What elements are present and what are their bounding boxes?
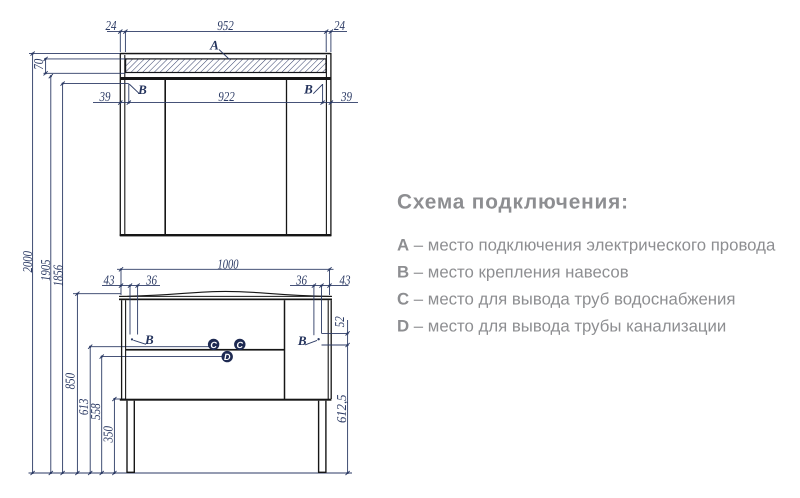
svg-text:558: 558 (88, 403, 103, 420)
svg-text:850: 850 (63, 373, 78, 390)
svg-text:36: 36 (295, 272, 307, 287)
svg-text:D – место для вывода трубы кан: D – место для вывода трубы канализации (397, 317, 726, 336)
svg-text:B: B (297, 333, 307, 348)
svg-text:B: B (144, 332, 154, 347)
svg-text:B: B (137, 82, 147, 97)
svg-text:24: 24 (106, 18, 117, 33)
svg-text:43: 43 (104, 272, 115, 287)
svg-text:52: 52 (332, 316, 347, 327)
svg-text:Схема подключения:: Схема подключения: (397, 191, 628, 214)
svg-text:C: C (237, 340, 244, 350)
svg-text:1000: 1000 (218, 257, 239, 272)
svg-text:952: 952 (217, 18, 234, 33)
svg-text:A – место подключения электрич: A – место подключения электрического про… (397, 236, 776, 255)
svg-text:350: 350 (101, 426, 116, 443)
svg-text:2000: 2000 (20, 251, 35, 273)
svg-text:24: 24 (334, 18, 345, 33)
svg-text:43: 43 (340, 272, 351, 287)
svg-text:39: 39 (99, 89, 111, 104)
svg-text:A: A (209, 38, 219, 53)
svg-text:612,5: 612,5 (334, 394, 349, 423)
svg-text:922: 922 (218, 89, 235, 104)
svg-text:D: D (224, 352, 231, 362)
svg-text:B: B (303, 82, 313, 97)
svg-text:C: C (210, 340, 217, 350)
svg-text:C – место для вывода труб водо: C – место для вывода труб водоснабжения (397, 290, 736, 309)
svg-text:B – место крепления навесов: B – место крепления навесов (397, 263, 629, 282)
svg-text:39: 39 (340, 89, 352, 104)
svg-text:36: 36 (145, 272, 157, 287)
svg-text:1856: 1856 (50, 265, 65, 287)
